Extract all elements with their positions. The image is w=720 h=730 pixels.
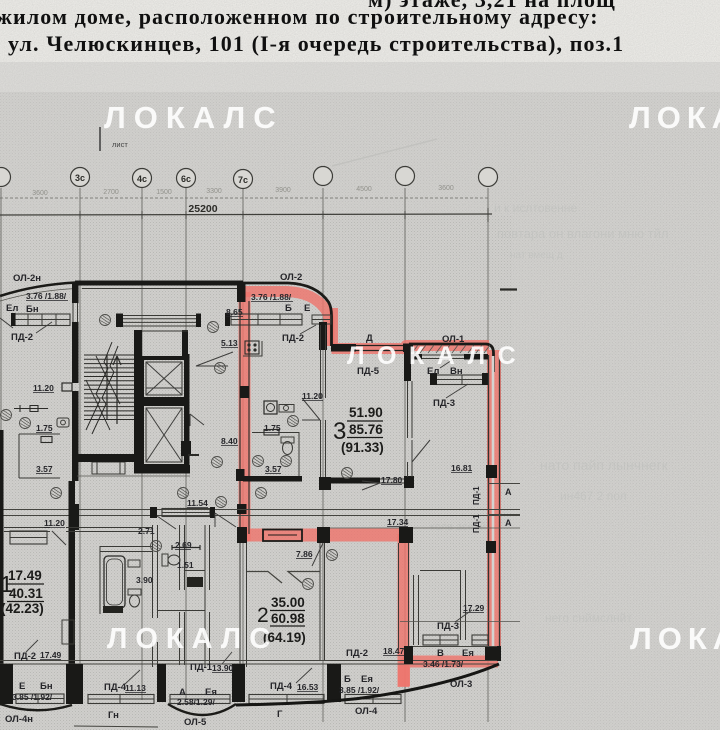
svg-text:3с: 3с [75, 173, 85, 183]
svg-text:40.31: 40.31 [9, 586, 43, 601]
svg-text:1.75: 1.75 [264, 423, 281, 433]
svg-text:ПД-2: ПД-2 [346, 648, 368, 659]
svg-text:7.86: 7.86 [296, 549, 313, 559]
svg-text:2.69: 2.69 [175, 540, 192, 550]
svg-text:ПД-2: ПД-2 [14, 651, 36, 662]
svg-text:3.85 /1.92/: 3.85 /1.92/ [12, 692, 53, 702]
svg-text:17.29: 17.29 [463, 603, 485, 613]
svg-text:А: А [505, 487, 512, 497]
svg-text:лист: лист [112, 140, 128, 149]
svg-text:Ея: Ея [462, 648, 474, 659]
svg-text:2700: 2700 [103, 189, 119, 196]
svg-text:3.46 /1.73/: 3.46 /1.73/ [423, 659, 464, 669]
svg-text:Ея: Ея [205, 687, 217, 698]
svg-text:18.47: 18.47 [383, 646, 405, 656]
svg-text:3300: 3300 [206, 188, 222, 195]
svg-text:1.75: 1.75 [36, 423, 53, 433]
svg-text:3900: 3900 [275, 187, 291, 194]
svg-text:51.90: 51.90 [349, 405, 383, 420]
svg-text:8.65: 8.65 [226, 307, 243, 317]
svg-text:Ел: Ел [6, 303, 18, 314]
svg-text:нато пайп лынчнегк: нато пайп лынчнегк [540, 457, 669, 473]
svg-text:ПД-1: ПД-1 [472, 486, 481, 505]
svg-text:17.49: 17.49 [8, 568, 42, 583]
svg-text:жилом доме, расположенном по с: жилом доме, расположенном по строительно… [0, 4, 599, 29]
svg-text:16.53: 16.53 [297, 682, 319, 692]
svg-text:Е: Е [19, 681, 25, 692]
svg-text:13.90: 13.90 [212, 663, 234, 673]
svg-text:4с: 4с [137, 174, 147, 184]
svg-text:7с: 7с [238, 175, 248, 185]
svg-text:11.20: 11.20 [44, 518, 65, 528]
svg-text:ОЛ-4: ОЛ-4 [355, 706, 378, 717]
svg-text:ЛОКАЛС: ЛОКАЛС [104, 100, 284, 135]
svg-text:Е: Е [304, 303, 310, 314]
svg-text:и к ислтовенне: и к ислтовенне [494, 201, 578, 215]
svg-text:ОЛ-4н: ОЛ-4н [5, 714, 33, 725]
svg-text:8.40: 8.40 [221, 436, 238, 446]
svg-text:17.49: 17.49 [40, 650, 62, 660]
svg-text:3.76 /1.88/: 3.76 /1.88/ [251, 292, 292, 302]
svg-text:ПД-2: ПД-2 [11, 332, 33, 343]
svg-text:1.51: 1.51 [177, 560, 194, 570]
svg-text:17.34: 17.34 [387, 517, 409, 527]
svg-text:4500: 4500 [356, 186, 372, 193]
svg-text:1500: 1500 [156, 189, 172, 196]
svg-text:Гн: Гн [108, 710, 119, 721]
svg-text:ПД-3: ПД-3 [437, 621, 459, 632]
svg-text:85.76: 85.76 [349, 422, 383, 437]
svg-text:35.00: 35.00 [271, 595, 305, 610]
svg-text:3.90: 3.90 [136, 575, 153, 585]
svg-text:ПД-1: ПД-1 [472, 514, 481, 533]
svg-text:ЛОКАЛС: ЛОКАЛС [629, 100, 720, 135]
svg-text:5.13: 5.13 [221, 338, 238, 348]
svg-text:ЛОКАЛС: ЛОКАЛС [347, 342, 528, 370]
svg-text:2.58/1.29/: 2.58/1.29/ [177, 697, 215, 707]
svg-text:ул. Челюскинцев, 101 (I-я очер: ул. Челюскинцев, 101 (I-я очередь строит… [8, 31, 624, 56]
svg-text:11.13: 11.13 [125, 683, 146, 693]
svg-text:В: В [437, 648, 444, 659]
svg-text:А: А [505, 518, 512, 528]
svg-text:(42.23): (42.23) [1, 601, 44, 616]
svg-text:2.71: 2.71 [138, 526, 155, 536]
svg-text:3600: 3600 [438, 185, 454, 192]
svg-text:него снймслнйт: него снймслнйт [545, 611, 632, 625]
svg-text:(91.33): (91.33) [341, 440, 384, 455]
svg-text:Б: Б [344, 674, 351, 685]
svg-text:ин467 2 пол: ин467 2 пол [560, 489, 627, 503]
svg-text:6с: 6с [181, 174, 191, 184]
svg-text:Бн: Бн [40, 681, 53, 692]
svg-text:ПД-3: ПД-3 [433, 398, 455, 409]
svg-text:3.85 /1.92/: 3.85 /1.92/ [339, 685, 380, 695]
svg-text:А: А [179, 687, 186, 698]
svg-text:ОЛ-3: ОЛ-3 [450, 679, 472, 690]
svg-text:ЛОКАЛС: ЛОКАЛС [630, 621, 720, 656]
svg-text:17.80: 17.80 [381, 475, 403, 485]
svg-text:25200: 25200 [188, 203, 217, 215]
svg-text:11.20: 11.20 [33, 383, 54, 393]
svg-text:3600: 3600 [32, 190, 48, 197]
svg-text:ОЛ-5: ОЛ-5 [184, 717, 207, 728]
svg-text:3.76 /1.88/: 3.76 /1.88/ [26, 291, 67, 301]
svg-text:ПД-2: ПД-2 [282, 333, 304, 344]
svg-text:ПД-4: ПД-4 [270, 681, 293, 692]
svg-text:Ея: Ея [361, 674, 373, 685]
svg-text:ПД-1: ПД-1 [190, 662, 213, 673]
svg-text:Б: Б [285, 303, 292, 314]
svg-text:нат вмещ д: нат вмещ д [510, 250, 563, 261]
svg-text:ЛОКАЛС: ЛОКАЛС [107, 623, 278, 655]
svg-text:11.20: 11.20 [302, 391, 323, 401]
svg-text:ОЛ-2н: ОЛ-2н [13, 273, 41, 284]
svg-text:Бн: Бн [26, 304, 39, 315]
svg-text:16.81: 16.81 [451, 463, 473, 473]
svg-text:3.57: 3.57 [36, 464, 53, 474]
svg-text:повтаpa он влагони мню тйл: повтаpa он влагони мню тйл [497, 226, 668, 241]
svg-text:Г: Г [277, 709, 283, 720]
svg-text:ПД-4: ПД-4 [104, 682, 127, 693]
svg-text:3.57: 3.57 [265, 464, 282, 474]
svg-text:ОЛ-2: ОЛ-2 [280, 272, 302, 283]
svg-text:11.54: 11.54 [187, 498, 208, 508]
